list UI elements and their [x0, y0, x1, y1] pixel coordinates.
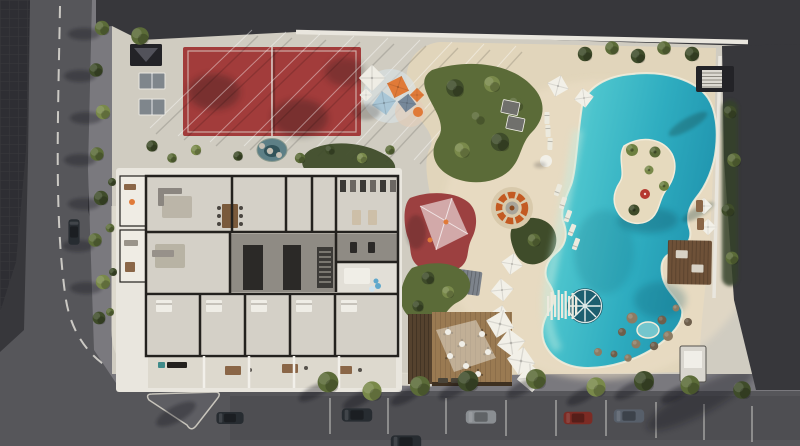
gym-equipment [360, 180, 366, 192]
street-tree [94, 191, 108, 205]
gym-bench [352, 210, 361, 225]
boardwalk-slat [572, 293, 574, 319]
rock [632, 340, 641, 349]
play-ball [374, 279, 379, 284]
rock [611, 351, 618, 358]
spin-bike [368, 242, 375, 253]
bed [296, 300, 312, 312]
tree [657, 41, 671, 55]
elevator-core [243, 245, 263, 290]
street-tree [95, 21, 109, 35]
terrace-chair [129, 199, 135, 205]
tree [578, 47, 592, 61]
slat-boardwalk [547, 290, 577, 320]
bush [357, 153, 367, 163]
parked-car [564, 412, 593, 425]
play-equipment [428, 238, 433, 243]
street-tree [96, 275, 110, 289]
island-umbrella-tip [644, 193, 646, 195]
deck-lounger [438, 378, 448, 383]
boardwalk-slat [568, 296, 570, 316]
tree [484, 76, 500, 92]
boardwalk-slat [547, 296, 549, 316]
street-tree [680, 375, 699, 394]
boardwalk-slat [565, 291, 567, 319]
tree [446, 79, 464, 97]
rock [624, 354, 632, 362]
stair-structure [696, 66, 734, 92]
apartment-floors [148, 296, 396, 354]
bush [325, 145, 335, 155]
rock [684, 318, 692, 326]
street-tree [88, 233, 102, 247]
rock [663, 331, 673, 341]
dining-chair [239, 206, 243, 210]
rug [162, 196, 192, 218]
boardwalk-slat [554, 295, 556, 317]
bush [191, 145, 201, 155]
sofa [152, 250, 174, 257]
bush [233, 151, 243, 161]
boardwalk-slat [575, 297, 577, 315]
street-tree [458, 371, 479, 392]
gym-equipment [350, 180, 356, 192]
spa-pool [637, 322, 659, 338]
bush [109, 268, 117, 276]
fire-pit-lounge [491, 187, 533, 229]
palm-tree [659, 181, 669, 191]
rock [658, 316, 667, 325]
tree [471, 111, 485, 125]
sofa [158, 188, 164, 206]
dining-table [222, 204, 238, 228]
terrace-furniture [124, 184, 136, 190]
palm-tree [645, 166, 654, 175]
palm-tree [629, 205, 640, 216]
wheel-hub [583, 304, 587, 308]
rock [618, 328, 626, 336]
tree [131, 27, 149, 45]
bed [251, 300, 267, 312]
pergola-deck [667, 240, 712, 285]
tree [685, 47, 699, 61]
bush [108, 178, 116, 186]
bed [341, 300, 357, 312]
bush [106, 308, 114, 316]
terraces [148, 356, 396, 388]
dining-chair [239, 214, 243, 218]
rock [594, 348, 602, 356]
parked-car [614, 409, 644, 422]
street-tree [93, 312, 106, 325]
cabana-lounger [697, 218, 704, 230]
pergola-sofa [676, 250, 688, 258]
terrace [120, 230, 146, 282]
terrace-table [125, 262, 135, 272]
street-tree [634, 371, 654, 391]
terrace-chair [358, 368, 362, 372]
gym-equipment [380, 180, 386, 192]
street-tree [733, 381, 751, 399]
street-tree [90, 147, 104, 161]
dining-chair [239, 222, 243, 226]
rock [673, 305, 680, 312]
parked-car [216, 412, 243, 424]
boardwalk-slat [551, 292, 553, 320]
outdoor-kitchen-cart [158, 362, 165, 368]
gym-equipment [390, 180, 396, 192]
dining-room [217, 204, 243, 228]
core-stair-steps [319, 252, 331, 282]
play-ball [369, 286, 375, 292]
kids-room-table [344, 268, 370, 284]
sun-lounger [547, 138, 552, 150]
tree [724, 106, 737, 119]
street-tree [362, 381, 381, 400]
tree [722, 204, 735, 217]
court-tree-shadow [188, 74, 240, 110]
parked-car [466, 410, 496, 423]
parked-car [342, 408, 372, 421]
play-equipment [444, 220, 449, 225]
dining-chair [217, 222, 221, 226]
terrace-table [282, 364, 298, 373]
boardwalk-slat [558, 290, 560, 320]
kids-playground [405, 193, 477, 272]
terrace-chair [304, 366, 308, 370]
outdoor-kitchen [167, 362, 187, 368]
building-roof-panel [684, 351, 702, 368]
palm-tree [650, 147, 661, 158]
pool-depth-shadow [634, 282, 686, 318]
elevator-core [283, 245, 301, 290]
gym-bench [368, 210, 377, 225]
dining-chair [217, 214, 221, 218]
street-tree [96, 105, 110, 119]
tree [727, 153, 741, 167]
tree [726, 252, 739, 265]
entry-canopy [130, 44, 162, 66]
table-shadow [534, 162, 546, 168]
tree [422, 272, 435, 285]
bed [206, 300, 222, 312]
terrace-sofa [124, 240, 138, 246]
floor-plan [106, 168, 402, 392]
bush [385, 145, 395, 155]
site-plan-render: Aerial architectural rendering of reside… [0, 0, 800, 446]
garden-pond [257, 139, 287, 162]
palm-tree [626, 144, 638, 156]
tree [454, 142, 469, 157]
net-shadow [406, 215, 426, 249]
tree [605, 41, 619, 55]
pergola-slats [667, 240, 712, 285]
street-tree [89, 63, 103, 77]
tree [528, 234, 541, 247]
tree [442, 286, 454, 298]
render-canvas [0, 0, 800, 446]
tree [412, 300, 423, 311]
cabana-lounger [696, 200, 703, 212]
bush [146, 140, 157, 151]
gym-equipment [370, 180, 376, 192]
street-tree [526, 369, 546, 389]
dining-chair [217, 206, 221, 210]
rock [627, 313, 638, 324]
playground-shadow [352, 104, 380, 120]
rock [650, 342, 659, 351]
spin-bike [350, 242, 357, 253]
bush [167, 153, 177, 163]
sun-lounger [545, 112, 550, 124]
bed [156, 300, 172, 312]
gym-equipment [340, 180, 346, 192]
bush [106, 224, 115, 233]
street-tree [410, 376, 430, 396]
play-seat [413, 107, 423, 117]
fire-ember [510, 206, 515, 211]
terrace-table [225, 366, 241, 375]
tree [491, 133, 509, 151]
sun-lounger [545, 125, 550, 137]
boardwalk-slat [561, 294, 563, 318]
bush [295, 153, 305, 163]
pergola-sofa [691, 264, 703, 272]
street-tree [318, 372, 339, 393]
play-ball [375, 283, 381, 289]
tree [631, 49, 645, 63]
parked-car [391, 435, 421, 446]
street-tree [586, 377, 605, 396]
parked-car [68, 219, 79, 245]
deck-dark-slats [408, 314, 432, 384]
